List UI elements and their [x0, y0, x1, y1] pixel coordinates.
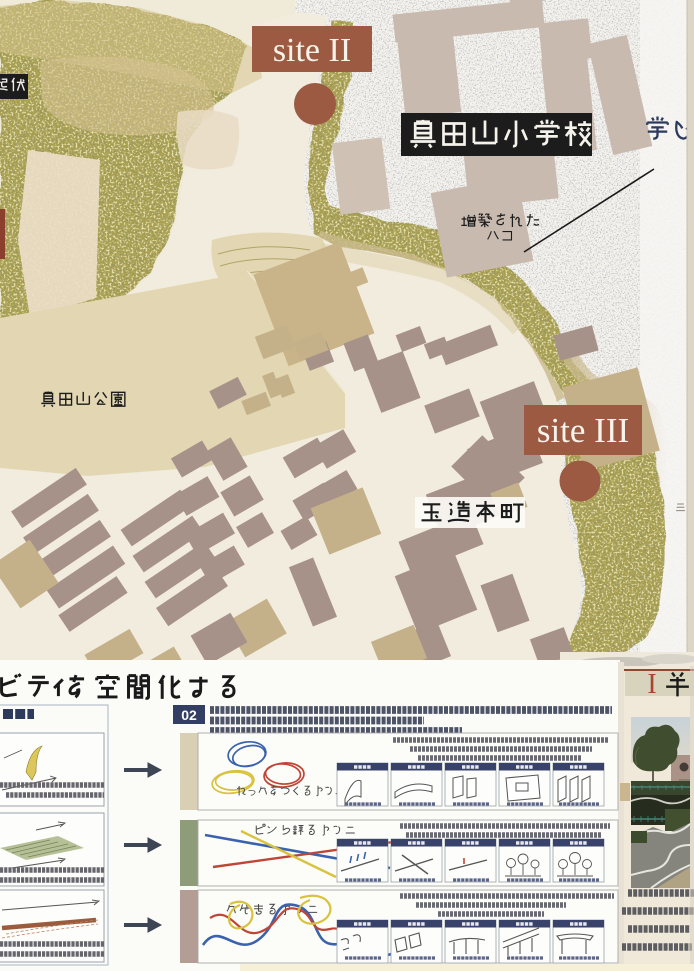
svg-text:site II: site II: [273, 32, 351, 69]
svg-text:I: I: [647, 669, 656, 700]
svg-text:02: 02: [181, 707, 197, 723]
svg-text:site III: site III: [537, 411, 629, 450]
